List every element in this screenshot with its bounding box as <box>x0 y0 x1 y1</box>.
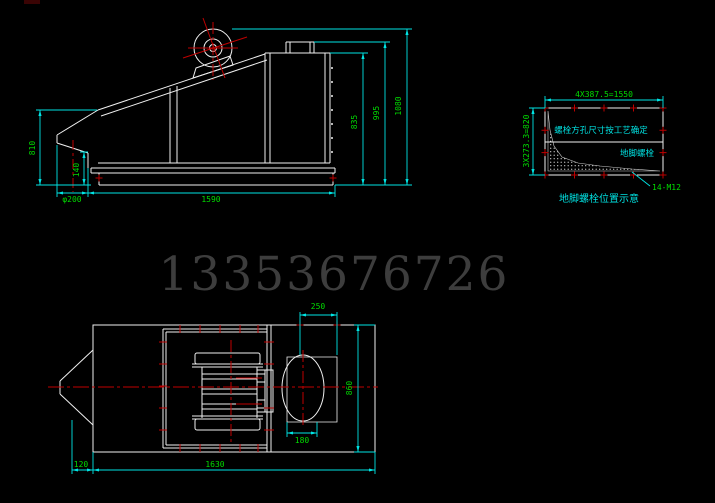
dim-bolt-spacing-horizontal: 4X387.5=1550 <box>575 90 633 99</box>
dim-outlet-drop: 140 <box>72 163 81 178</box>
artifact-smudge <box>24 0 40 4</box>
dim-outlet-offset: 250 <box>311 302 326 311</box>
process-note: 螺栓方孔尺寸按工艺确定 <box>554 125 648 136</box>
dim-base-length: 1590 <box>201 195 220 204</box>
watermark-phone-number: 13353676726 <box>159 247 510 302</box>
dim-screen-height: 835 <box>350 115 359 130</box>
dim-left-height: 810 <box>28 141 37 156</box>
cad-screenshot: 810 140 φ200 1590 835 995 1080 4X387.5=1… <box>0 0 715 503</box>
bolt-spec-callout: 14-M12 <box>652 183 681 192</box>
dim-outlet-width: 180 <box>295 436 310 445</box>
dim-tip-offset: 120 <box>74 460 89 469</box>
dim-total-height: 1080 <box>394 96 403 115</box>
dim-inlet-height: 995 <box>372 106 381 121</box>
cad-drawing: 810 140 φ200 1590 835 995 1080 4X387.5=1… <box>0 0 715 503</box>
dim-outlet-dia: φ200 <box>62 195 81 204</box>
detail-caption: 地脚螺栓位置示意 <box>559 192 639 205</box>
dim-body-width: 860 <box>345 381 354 396</box>
dim-body-length: 1630 <box>205 460 224 469</box>
dim-bolt-spacing-vertical: 3X273.3=820 <box>522 114 531 167</box>
anchor-bolt-label: 地脚螺栓 <box>620 148 655 159</box>
